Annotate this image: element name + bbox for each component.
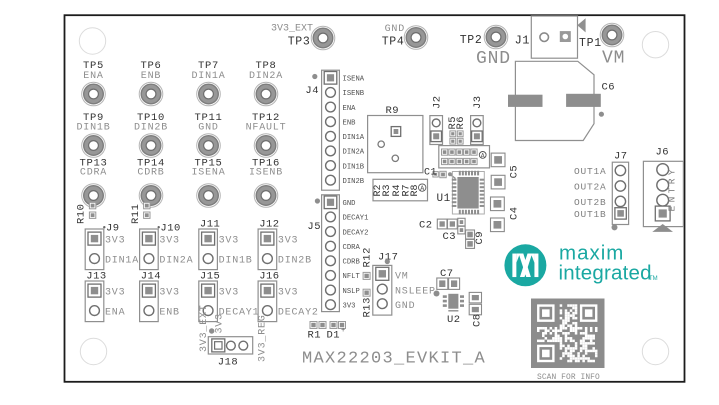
svg-text:J14: J14 — [141, 271, 161, 283]
svg-text:J18: J18 — [218, 357, 238, 369]
svg-text:NFLT: NFLT — [343, 273, 361, 281]
svg-text:C6: C6 — [602, 82, 616, 94]
svg-text:OUT2B: OUT2B — [574, 197, 607, 208]
svg-text:R12: R12 — [362, 247, 374, 267]
svg-text:CDRA: CDRA — [80, 167, 107, 178]
svg-text:GND: GND — [198, 123, 218, 134]
svg-text:3V3_EXT: 3V3_EXT — [271, 24, 313, 35]
svg-text:J10: J10 — [160, 223, 180, 235]
svg-text:ISENA: ISENA — [191, 167, 225, 178]
svg-text:U1: U1 — [437, 193, 451, 205]
svg-text:C5: C5 — [509, 165, 521, 179]
svg-text:DIN2B: DIN2B — [278, 256, 312, 267]
svg-text:CDRB: CDRB — [343, 259, 361, 267]
svg-text:integrated: integrated — [559, 262, 652, 285]
svg-text:J16: J16 — [259, 271, 279, 283]
svg-text:OUT1A: OUT1A — [574, 166, 607, 177]
svg-text:DIN2A: DIN2A — [159, 256, 193, 267]
svg-text:NSLP: NSLP — [343, 288, 360, 296]
svg-text:J12: J12 — [259, 219, 279, 231]
svg-text:J2: J2 — [431, 95, 443, 109]
svg-text:C8: C8 — [472, 313, 484, 327]
svg-text:GND: GND — [385, 24, 405, 35]
svg-text:DECAY2: DECAY2 — [278, 308, 319, 319]
svg-text:J9: J9 — [106, 223, 120, 235]
svg-text:VM: VM — [395, 272, 409, 283]
svg-text:ISENB: ISENB — [249, 167, 283, 178]
svg-text:C2: C2 — [419, 220, 433, 232]
svg-text:3V3: 3V3 — [215, 313, 226, 333]
svg-text:GND: GND — [343, 200, 356, 208]
svg-text:NSLEEP: NSLEEP — [395, 287, 436, 298]
svg-text:DIN2A: DIN2A — [249, 71, 283, 82]
svg-text:TP2: TP2 — [460, 34, 483, 47]
svg-text:D1: D1 — [327, 330, 341, 342]
svg-text:ENB: ENB — [159, 308, 179, 319]
svg-text:J6: J6 — [656, 147, 670, 159]
svg-text:ENB: ENB — [343, 119, 357, 127]
svg-text:DIN1A: DIN1A — [191, 71, 225, 82]
svg-text:CDRB: CDRB — [137, 167, 164, 178]
svg-text:C3: C3 — [443, 231, 457, 243]
svg-text:TP4: TP4 — [382, 36, 405, 49]
svg-text:TM: TM — [649, 276, 658, 282]
svg-text:DIN1B: DIN1B — [76, 123, 110, 134]
svg-text:DIN1A: DIN1A — [343, 134, 365, 142]
svg-text:R1: R1 — [308, 330, 322, 342]
svg-text:J7: J7 — [614, 150, 628, 162]
svg-text:DECAY1: DECAY1 — [343, 215, 369, 223]
svg-text:MAX22203_EVKIT_A: MAX22203_EVKIT_A — [302, 350, 486, 369]
svg-text:DIN2B: DIN2B — [343, 178, 365, 186]
svg-text:ISENB: ISENB — [343, 90, 365, 98]
svg-text:3V3: 3V3 — [105, 288, 125, 299]
svg-text:OUT1B: OUT1B — [574, 209, 607, 220]
svg-text:J15: J15 — [200, 271, 220, 283]
svg-text:R11: R11 — [130, 204, 142, 224]
svg-text:DIN1B: DIN1B — [219, 256, 253, 267]
svg-text:3V3: 3V3 — [159, 288, 179, 299]
svg-text:A: A — [481, 152, 485, 159]
svg-text:R10: R10 — [76, 204, 88, 224]
svg-text:3V3_REG: 3V3_REG — [258, 314, 269, 362]
svg-text:3V3: 3V3 — [219, 288, 239, 299]
svg-text:J5: J5 — [307, 221, 321, 233]
svg-text:TP3: TP3 — [288, 36, 311, 49]
svg-text:ENA: ENA — [83, 71, 103, 82]
svg-text:VM: VM — [602, 49, 625, 69]
svg-text:3V3: 3V3 — [343, 302, 356, 310]
svg-text:J1: J1 — [515, 34, 530, 48]
svg-text:3V3: 3V3 — [278, 288, 298, 299]
svg-text:R9: R9 — [386, 105, 400, 117]
svg-text:3V3: 3V3 — [278, 236, 298, 247]
svg-text:3V3: 3V3 — [159, 236, 179, 247]
svg-text:3V3_EXT: 3V3_EXT — [199, 304, 210, 352]
svg-text:OUT2A: OUT2A — [574, 182, 607, 193]
svg-text:ENA: ENA — [343, 105, 357, 113]
svg-text:SCAN FOR INFO: SCAN FOR INFO — [537, 373, 600, 382]
svg-text:NFAULT: NFAULT — [246, 123, 287, 134]
svg-text:J11: J11 — [200, 219, 220, 231]
svg-text:ISENA: ISENA — [343, 76, 365, 84]
svg-text:C1: C1 — [424, 168, 437, 179]
svg-text:U2: U2 — [447, 314, 461, 326]
svg-text:GND: GND — [395, 301, 415, 312]
svg-text:3V3: 3V3 — [105, 236, 125, 247]
svg-text:R13: R13 — [362, 297, 374, 317]
svg-text:DIN1A: DIN1A — [105, 256, 139, 267]
svg-text:+: + — [341, 327, 345, 335]
svg-text:TP1: TP1 — [579, 37, 602, 50]
svg-text:ENB: ENB — [141, 71, 161, 82]
svg-text:DIN2A: DIN2A — [343, 149, 365, 157]
svg-text:C4: C4 — [509, 206, 521, 220]
svg-text:ENTRY: ENTRY — [667, 166, 678, 212]
svg-text:C7: C7 — [440, 268, 454, 280]
svg-text:J4: J4 — [305, 85, 319, 97]
svg-text:J13: J13 — [86, 271, 106, 283]
svg-text:DIN1B: DIN1B — [343, 163, 365, 171]
svg-text:ENA: ENA — [105, 308, 125, 319]
svg-text:J3: J3 — [472, 95, 484, 109]
svg-text:R6: R6 — [455, 116, 467, 130]
svg-text:GND: GND — [476, 49, 511, 69]
svg-text:3V3: 3V3 — [219, 236, 239, 247]
svg-text:C9: C9 — [474, 231, 486, 245]
svg-text:DIN2B: DIN2B — [134, 123, 168, 134]
svg-text:DECAY2: DECAY2 — [343, 229, 369, 237]
svg-text:CDRA: CDRA — [343, 244, 361, 252]
